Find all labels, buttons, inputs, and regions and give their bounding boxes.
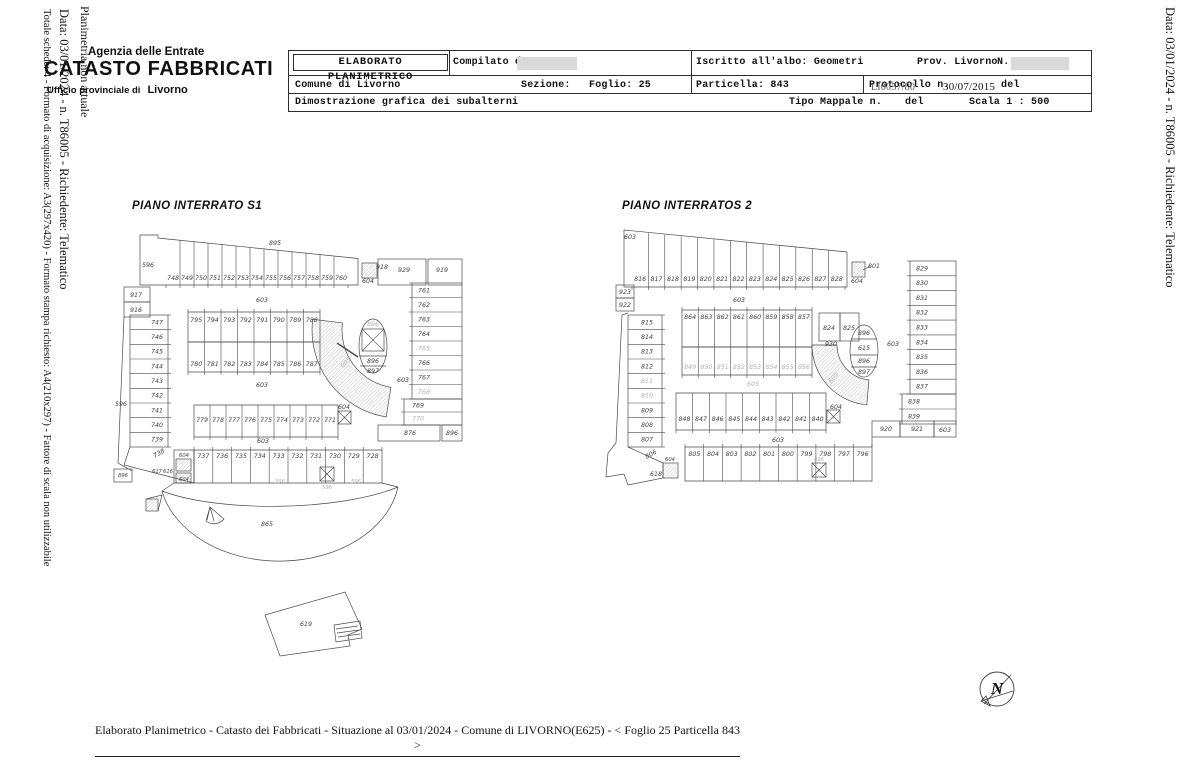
plan-number: 603 <box>257 438 269 445</box>
plan-number: 815 <box>641 319 653 326</box>
plan-number: 896 <box>367 321 379 328</box>
del-label-2: del <box>905 97 924 108</box>
plan-number: 796 <box>857 451 869 458</box>
plan-number: 864 <box>684 314 696 321</box>
plan-number: 783 <box>240 361 252 368</box>
sezione-label: Sezione: <box>521 80 571 91</box>
north-letter: N <box>990 679 1004 698</box>
plan-number: 799 <box>801 451 813 458</box>
plan-number: 895 <box>269 240 281 247</box>
plan-number: 854 <box>765 364 777 371</box>
plan-labels: 7487497507517527537547557567577587597607… <box>115 240 458 628</box>
plan-number: 851 <box>717 364 729 371</box>
plan-number: 797 <box>838 451 850 458</box>
plan-number: 786 <box>289 361 301 368</box>
foglio-label: Foglio: 25 <box>589 80 651 91</box>
plan-number: 603 <box>397 377 409 384</box>
plan-number: 863 <box>700 314 712 321</box>
plan-number: 817 <box>651 276 663 283</box>
plan-number: 596 <box>275 479 286 485</box>
plan-number: 841 <box>795 416 807 423</box>
document-page: Planimetria non attuale Data: 03/01/2024… <box>0 0 1200 768</box>
plan-number: 728 <box>367 453 379 460</box>
protocollo-overlap-number: LI0057/80 <box>871 82 915 93</box>
plan-number: 776 <box>244 417 256 424</box>
plan-number: 812 <box>641 363 653 370</box>
redacted-compilato <box>517 57 577 70</box>
plan-number: 814 <box>641 334 653 341</box>
table-rule <box>691 51 692 93</box>
dimostrazione-label: Dimostrazione grafica dei subalterni <box>295 97 518 108</box>
plan-number: 752 <box>223 275 235 282</box>
plan-number: 896 <box>446 430 458 437</box>
plan-number: 761 <box>418 287 430 294</box>
plan-number: 795 <box>190 317 202 324</box>
plan-number: 748 <box>167 275 179 282</box>
plan-number: 603 <box>733 297 745 304</box>
plan-number: 860 <box>749 314 761 321</box>
plan-number: 929 <box>398 267 410 274</box>
plan-s2-drawing: 8168178188198208218228238248258268278288… <box>600 225 960 515</box>
plan-number: 853 <box>749 364 761 371</box>
plan-number: 808 <box>641 422 653 429</box>
plan-number: 801 <box>868 263 880 270</box>
plan-number: 850 <box>700 364 712 371</box>
plan-number: 775 <box>260 417 272 424</box>
plan-number: 811 <box>641 378 653 385</box>
plan-number: 827 <box>814 276 826 283</box>
plan-number: 846 <box>712 416 724 423</box>
plan-number: 818 <box>667 276 679 283</box>
plan-number: 596 <box>115 401 127 408</box>
plan-number: 849 <box>684 364 696 371</box>
plan-number: 753 <box>237 275 249 282</box>
plan-number: 835 <box>916 354 928 361</box>
plan-number: 741 <box>151 407 163 414</box>
plan-number: 822 <box>732 276 744 283</box>
plan-number: 852 <box>733 364 745 371</box>
plan-number: 920 <box>880 426 892 433</box>
plan-number: 785 <box>273 361 285 368</box>
plan-number: 820 <box>700 276 712 283</box>
table-rule <box>449 51 450 75</box>
plan-number: 751 <box>209 275 221 282</box>
plan-number: 619 <box>300 621 312 628</box>
plan-number: 604 <box>665 457 675 463</box>
plan-number: 793 <box>223 317 235 324</box>
plan-number: 788 <box>306 317 318 324</box>
plan-number: 824 <box>823 325 835 332</box>
comune-label: Comune di Livorno <box>295 80 400 91</box>
plan-number: 603 <box>256 297 268 304</box>
header-table: ELABORATO PLANIMETRICO Compilato da: Isc… <box>288 50 1092 112</box>
plan-number: 831 <box>916 295 928 302</box>
plan-number: 617 <box>152 469 163 475</box>
plan-number: 618 <box>650 471 662 478</box>
plan-number: 736 <box>216 453 228 460</box>
plan-number: 763 <box>418 316 430 323</box>
plan-number: 919 <box>436 267 448 274</box>
plan-number: 756 <box>279 275 291 282</box>
plan-number: 604 <box>362 278 374 285</box>
plan-number: 747 <box>151 319 163 326</box>
tipo-mappale-label: Tipo Mappale n. <box>789 97 882 108</box>
plan-s1-title: PIANO INTERRATO S1 <box>132 200 262 212</box>
elaborato-title: ELABORATO PLANIMETRICO <box>293 54 448 71</box>
plan-s1-drawing: 7487497507517527537547557567577587597607… <box>110 225 470 670</box>
plan-labels: 8168178188198208218228238248258268278288… <box>619 234 951 478</box>
plan-number: 740 <box>151 422 163 429</box>
plan-number: 809 <box>641 407 653 414</box>
plan-number: 865 <box>261 521 273 528</box>
plan-number: 930 <box>825 341 837 348</box>
plan-number: 837 <box>916 384 928 391</box>
plan-number: 859 <box>765 314 777 321</box>
plan-number: 738 <box>152 448 166 460</box>
plan-number: 604 <box>338 404 350 411</box>
plan-number: 603 <box>624 234 636 241</box>
plan-number: 861 <box>733 314 745 321</box>
plan-number: 816 <box>634 276 646 283</box>
plan-number: 762 <box>418 302 430 309</box>
plan-number: 769 <box>412 403 424 410</box>
plan-number: 603 <box>772 437 784 444</box>
plan-s2-title: PIANO INTERRATOS 2 <box>622 200 752 212</box>
plan-number: 733 <box>273 453 285 460</box>
plan-number: 800 <box>782 451 794 458</box>
plan-number: 897 <box>858 369 870 376</box>
floorplan-s2: 8168178188198208218228238248258268278288… <box>600 225 960 515</box>
plan-number: 794 <box>207 317 219 324</box>
plan-number: 596 <box>322 485 333 491</box>
plan-number: 829 <box>916 265 928 272</box>
plan-number: 750 <box>195 275 207 282</box>
plan-number: 838 <box>908 399 920 406</box>
del-label-1: del <box>1001 80 1020 91</box>
plan-number: 922 <box>619 302 631 309</box>
plan-number: 767 <box>418 374 430 381</box>
plan-number: 916 <box>130 307 142 314</box>
plan-number: 604 <box>179 453 189 459</box>
plan-number: 603 <box>887 341 899 348</box>
plan-number: 739 <box>151 437 163 444</box>
prov-label: Prov. Livorno <box>917 57 998 68</box>
plan-number: 802 <box>744 451 756 458</box>
plan-number: 744 <box>151 363 163 370</box>
plan-number: 759 <box>321 275 333 282</box>
plan-number: 896 <box>858 358 870 365</box>
plan-number: 770 <box>412 416 424 423</box>
plan-number: 745 <box>151 349 163 356</box>
plan-number: 778 <box>212 417 224 424</box>
plan-number: 839 <box>908 414 920 421</box>
plan-number: 764 <box>418 331 430 338</box>
redacted-numero <box>1011 57 1069 70</box>
plan-number: 896 <box>858 330 870 337</box>
floorplan-s1: 7487497507517527537547557567577587597607… <box>110 225 470 670</box>
table-rule <box>289 93 1091 94</box>
plan-number: 834 <box>916 339 928 346</box>
plan-number: 596 <box>142 262 154 269</box>
plan-number: 844 <box>745 416 757 423</box>
plan-number: 855 <box>782 364 794 371</box>
scala-label: Scala 1 : 500 <box>969 97 1050 108</box>
plan-number: 604 <box>830 404 842 411</box>
plan-number: 845 <box>728 416 740 423</box>
plan-number: 842 <box>778 416 790 423</box>
office-line: Ufficio provinciale diLivorno <box>47 84 188 96</box>
plan-number: 821 <box>716 276 728 283</box>
plan-number: 603 <box>747 381 759 388</box>
plan-number: 806 <box>644 449 658 461</box>
plan-number: 828 <box>831 276 843 283</box>
plan-number: 758 <box>307 275 319 282</box>
plan-number: 737 <box>197 453 209 460</box>
plan-number: 779 <box>196 417 208 424</box>
north-arrow: N <box>968 660 1026 718</box>
plan-number: 896 <box>367 358 379 365</box>
protocollo-date: 30/07/2015 <box>943 81 995 93</box>
plan-number: 897 <box>367 368 379 375</box>
plan-number: 896 <box>118 473 129 479</box>
plan-number: 876 <box>404 430 416 437</box>
plan-number: 813 <box>641 349 653 356</box>
plan-number: 790 <box>273 317 285 324</box>
plan-number: 825 <box>843 325 855 332</box>
plan-number: 792 <box>240 317 252 324</box>
plan-number: 734 <box>254 453 266 460</box>
plan-number: 596 <box>351 479 362 485</box>
plan-number: 742 <box>151 393 163 400</box>
plan-number: 784 <box>256 361 268 368</box>
plan-number: 731 <box>310 453 322 460</box>
table-rule <box>863 75 864 93</box>
plan-number: 826 <box>798 276 810 283</box>
n-label: N. <box>997 57 1009 68</box>
margin-text-data-right: Data: 03/01/2024 - n. T86005 - Richieden… <box>1162 7 1177 288</box>
plan-number: 848 <box>678 416 690 423</box>
plan-number: 805 <box>688 451 700 458</box>
plan-number: 804 <box>707 451 719 458</box>
plan-number: 840 <box>812 416 824 423</box>
plan-number: 730 <box>329 453 341 460</box>
plan-number: 825 <box>782 276 794 283</box>
plan-number: 782 <box>223 361 235 368</box>
office-label: Ufficio provinciale di <box>47 85 140 96</box>
plan-number: 743 <box>151 378 163 385</box>
plan-number: 615 <box>858 345 870 352</box>
plan-number: 858 <box>782 314 794 321</box>
plan-number: 823 <box>749 276 761 283</box>
plan-outlines <box>114 235 462 656</box>
plan-number: 773 <box>292 417 304 424</box>
plan-number: 801 <box>763 451 775 458</box>
plan-number: 896 <box>814 457 825 463</box>
plan-number: 856 <box>798 364 810 371</box>
plan-number: 780 <box>190 361 202 368</box>
plan-number: 757 <box>293 275 305 282</box>
plan-number: 774 <box>276 417 288 424</box>
plan-number: 732 <box>291 453 303 460</box>
plan-number: 749 <box>181 275 193 282</box>
plan-number: 754 <box>251 275 263 282</box>
plan-number: 735 <box>235 453 247 460</box>
plan-number: 604 <box>179 477 189 483</box>
plan-number: 843 <box>762 416 774 423</box>
plan-number: 791 <box>256 317 268 324</box>
plan-number: 847 <box>695 416 707 423</box>
plan-number: 862 <box>717 314 729 321</box>
plan-number: 616 <box>163 469 174 475</box>
registry-title: CATASTO FABBRICATI <box>44 58 273 81</box>
plan-number: 603 <box>939 427 951 434</box>
plan-number: 760 <box>335 275 347 282</box>
plan-number: 604 <box>851 278 863 285</box>
plan-number: 771 <box>324 417 336 424</box>
plan-number: 746 <box>151 334 163 341</box>
plan-number: 803 <box>726 451 738 458</box>
plan-number: 807 <box>641 437 653 444</box>
footer-caption: Elaborato Planimetrico - Catasto dei Fab… <box>95 723 740 757</box>
plan-number: 921 <box>911 426 923 433</box>
plan-number: 772 <box>308 417 320 424</box>
iscritto-albo: Iscritto all'albo: Geometri <box>696 57 863 68</box>
plan-number: 836 <box>916 369 928 376</box>
plan-number: 755 <box>265 275 277 282</box>
plan-number: 765 <box>418 345 430 352</box>
plan-number: 918 <box>376 264 388 271</box>
plan-number: 729 <box>348 453 360 460</box>
plan-number: 857 <box>798 314 810 321</box>
plan-number: 832 <box>916 310 928 317</box>
plan-outlines <box>606 230 956 485</box>
plan-number: 766 <box>418 360 430 367</box>
particella-label: Particella: 843 <box>696 80 789 91</box>
office-city: Livorno <box>147 84 187 96</box>
plan-number: 830 <box>916 280 928 287</box>
plan-number: 777 <box>228 417 240 424</box>
plan-number: 789 <box>289 317 301 324</box>
plan-number: 824 <box>765 276 777 283</box>
plan-number: 787 <box>306 361 318 368</box>
plan-number: 833 <box>916 325 928 332</box>
plan-number: 917 <box>130 292 142 299</box>
plan-number: 819 <box>683 276 695 283</box>
plan-number: 603 <box>256 382 268 389</box>
margin-text-data-left: Data: 03/01/2024 - n. T86005 - Richieden… <box>56 9 71 290</box>
plan-number: 810 <box>641 393 653 400</box>
plan-number: 768 <box>418 389 430 396</box>
agency-name: Agenzia delle Entrate <box>88 46 204 58</box>
plan-number: 781 <box>207 361 219 368</box>
plan-number: 923 <box>619 289 631 296</box>
